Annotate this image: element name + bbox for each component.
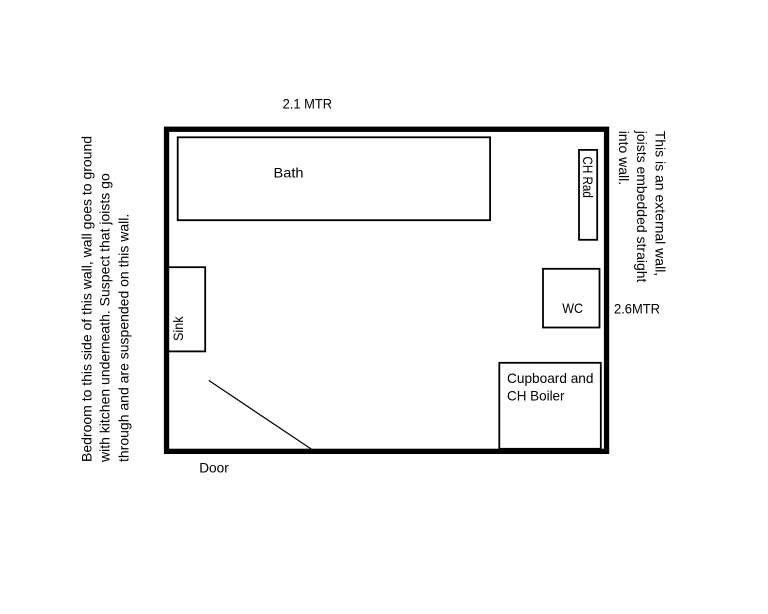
svg-text:2.6MTR: 2.6MTR	[614, 300, 660, 316]
svg-text:CH Rad: CH Rad	[580, 156, 596, 198]
svg-text:into wall.: into wall.	[616, 131, 632, 185]
svg-text:joists embedded straight: joists embedded straight	[634, 130, 650, 283]
svg-text:Door: Door	[199, 460, 229, 476]
svg-text:CH Boiler: CH Boiler	[507, 388, 565, 404]
svg-text:WC: WC	[562, 300, 583, 316]
svg-text:2.1 MTR: 2.1 MTR	[283, 96, 333, 112]
svg-text:through and are suspended on t: through and are suspended on this wall.	[115, 214, 131, 462]
svg-text:Sink: Sink	[170, 316, 186, 341]
svg-text:This is an external wall,: This is an external wall,	[652, 131, 668, 277]
svg-text:with kitchen underneath. Suspe: with kitchen underneath. Suspect that jo…	[97, 173, 113, 463]
svg-text:Bedroom to this side of this w: Bedroom to this side of this wall, wall …	[78, 136, 94, 462]
svg-text:Cupboard and: Cupboard and	[507, 370, 594, 386]
svg-text:Bath: Bath	[274, 164, 304, 180]
